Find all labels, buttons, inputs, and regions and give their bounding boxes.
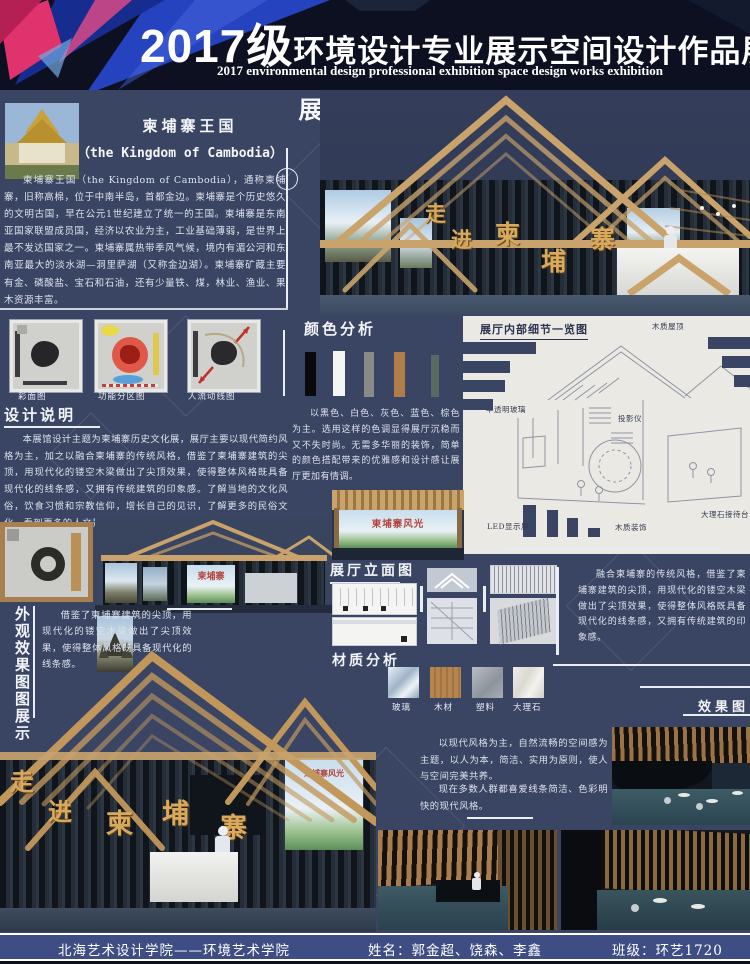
page-subtitle: 2017 environmental design professional e…: [140, 63, 740, 79]
label-projector: 投影仪: [618, 413, 642, 424]
modern-body-1: 以现代风格为主，自然流畅的空间感为主题，以人为本，简洁、实用为原则，使人与空间完…: [420, 736, 608, 786]
palette-graygreen: [431, 355, 439, 397]
material-plastic-swatch: [472, 667, 503, 698]
intro-subtitle: （the Kingdom of Cambodia）: [60, 142, 300, 161]
mural-wall-render: 柬埔寨风光: [332, 490, 464, 560]
material-glass-label: 玻璃: [392, 701, 411, 713]
entrance-char-3: 柬: [495, 215, 520, 251]
entrance-char-4: 埔: [541, 242, 566, 278]
exterior-char-4: 埔: [162, 792, 189, 831]
footer-class: 班级：环艺1720: [612, 939, 723, 959]
plan-zoning-thumb: [95, 320, 167, 392]
label-wood-roof: 木质屋顶: [652, 321, 684, 332]
color-analysis-heading: 颜色分析: [304, 318, 376, 339]
mannequin-head: [666, 226, 675, 235]
topview-render: [0, 522, 93, 602]
result-underline: [683, 714, 750, 716]
vertical-rule-left: [286, 148, 288, 308]
entrance-render: 走 进 柬 埔 寨: [320, 90, 750, 315]
intro-title: 柬埔寨王国: [90, 115, 290, 136]
elevation-divider-1: [420, 586, 423, 612]
palette-brown: [394, 352, 405, 397]
material-wood-label: 木材: [434, 701, 453, 713]
color-analysis-body: 以黑色、白色、灰色、蓝色、棕色为主。选用这样的色调显得展厅沉稳而又不失时尚。无需…: [292, 407, 460, 486]
result-label: 效果图: [698, 696, 749, 715]
detail-panel-underline: [505, 548, 720, 550]
label-wood-decor: 木质装饰: [615, 522, 647, 533]
facade-render: 柬埔寨: [95, 517, 333, 613]
poster-root: 2017级环境设计专业展示空间设计作品展 2017 environmental …: [0, 0, 750, 964]
plan-zoning-label: 功能分区图: [98, 390, 146, 402]
intro-divider: [0, 308, 288, 310]
palette-gray: [364, 352, 374, 397]
mural-title: 柬埔寨风光: [339, 510, 457, 530]
result-line-mid: [640, 686, 750, 688]
interior-render-1: [612, 727, 750, 825]
material-glass-swatch: [388, 667, 419, 698]
material-plastic-label: 塑料: [476, 701, 495, 713]
fusion-rule: [556, 567, 559, 655]
footer-bar: 北海艺术设计学院——环境艺术学院 姓名：郭金超、饶森、李鑫 班级：环艺1720: [0, 933, 750, 961]
elevation-divider-2: [483, 586, 486, 612]
exterior-char-3: 柬: [106, 802, 133, 841]
mural-image: 柬埔寨风光: [339, 510, 457, 548]
palette-black: [305, 352, 316, 396]
reception-counter: [617, 248, 739, 298]
plan-color-label: 彩面图: [18, 390, 47, 402]
modern-body-2: 现在多数人群都喜爱线条简洁、色彩明快的现代风格。: [420, 782, 608, 815]
plans-divider: [283, 330, 285, 396]
header-banner: 2017级环境设计专业展示空间设计作品展 2017 environmental …: [0, 0, 750, 90]
palette-white: [333, 351, 345, 396]
footer-names: 姓名：郭金超、饶森、李鑫: [368, 939, 542, 959]
plan-color-thumb: [10, 320, 82, 392]
fusion-body: 融合柬埔寨的传统风格，借鉴了柬埔寨建筑的尖顶，用现代化的镂空木梁做出了尖顶效果，…: [578, 568, 746, 647]
plan-circulation-label: 人流动线图: [188, 390, 236, 402]
exterior-floor: [0, 908, 376, 932]
modern-underline: [467, 817, 533, 819]
interior-render-2: [378, 830, 557, 930]
elevation-drawing-3: [427, 598, 477, 644]
footer-school: 北海艺术设计学院——环境艺术学院: [58, 939, 290, 959]
exterior-char-1: 走: [10, 762, 34, 797]
exterior-char-2: 进: [48, 792, 72, 827]
elevation-striped-2: [490, 598, 557, 644]
entrance-char-2: 进: [451, 224, 472, 254]
exterior-counter: [150, 852, 238, 902]
exterior-render: 柬埔寨风光 走 进 柬 埔 寨: [0, 640, 376, 932]
result-line-top: [553, 664, 750, 666]
elevation-striped-1: [490, 565, 557, 594]
label-led-screen: LED显示屏: [487, 521, 529, 532]
interior-render-3: [561, 830, 750, 930]
material-marble-label: 大理石: [513, 701, 542, 713]
plan-circulation-thumb: [188, 320, 260, 392]
elevation-roof-diagram: [427, 568, 477, 592]
facade-roof-beams: [95, 517, 333, 613]
material-marble-swatch: [513, 667, 544, 698]
entrance-floor: [320, 295, 750, 315]
elevation-drawing-1: [332, 583, 417, 615]
entrance-char-1: 走: [425, 198, 446, 228]
design-notes-heading: 设计说明: [4, 404, 76, 425]
exterior-mannequin-head: [218, 826, 228, 836]
intro-body: 柬埔寨王国（the Kingdom of Cambodia），通称柬埔寨，旧称高…: [4, 172, 286, 309]
entrance-char-5: 寨: [590, 220, 615, 256]
palace-photo: [5, 103, 79, 179]
label-marble-desk: 大理石接待台: [701, 509, 749, 520]
elevation-heading: 展厅立面图: [330, 560, 415, 584]
material-wood-swatch: [430, 667, 461, 698]
